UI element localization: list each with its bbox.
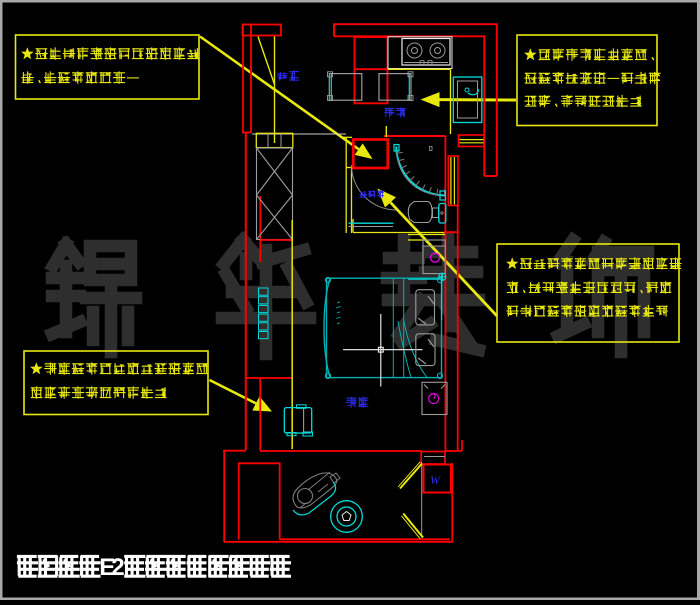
svg-text:2: 2	[111, 554, 124, 581]
svg-text:W: W	[430, 473, 441, 487]
